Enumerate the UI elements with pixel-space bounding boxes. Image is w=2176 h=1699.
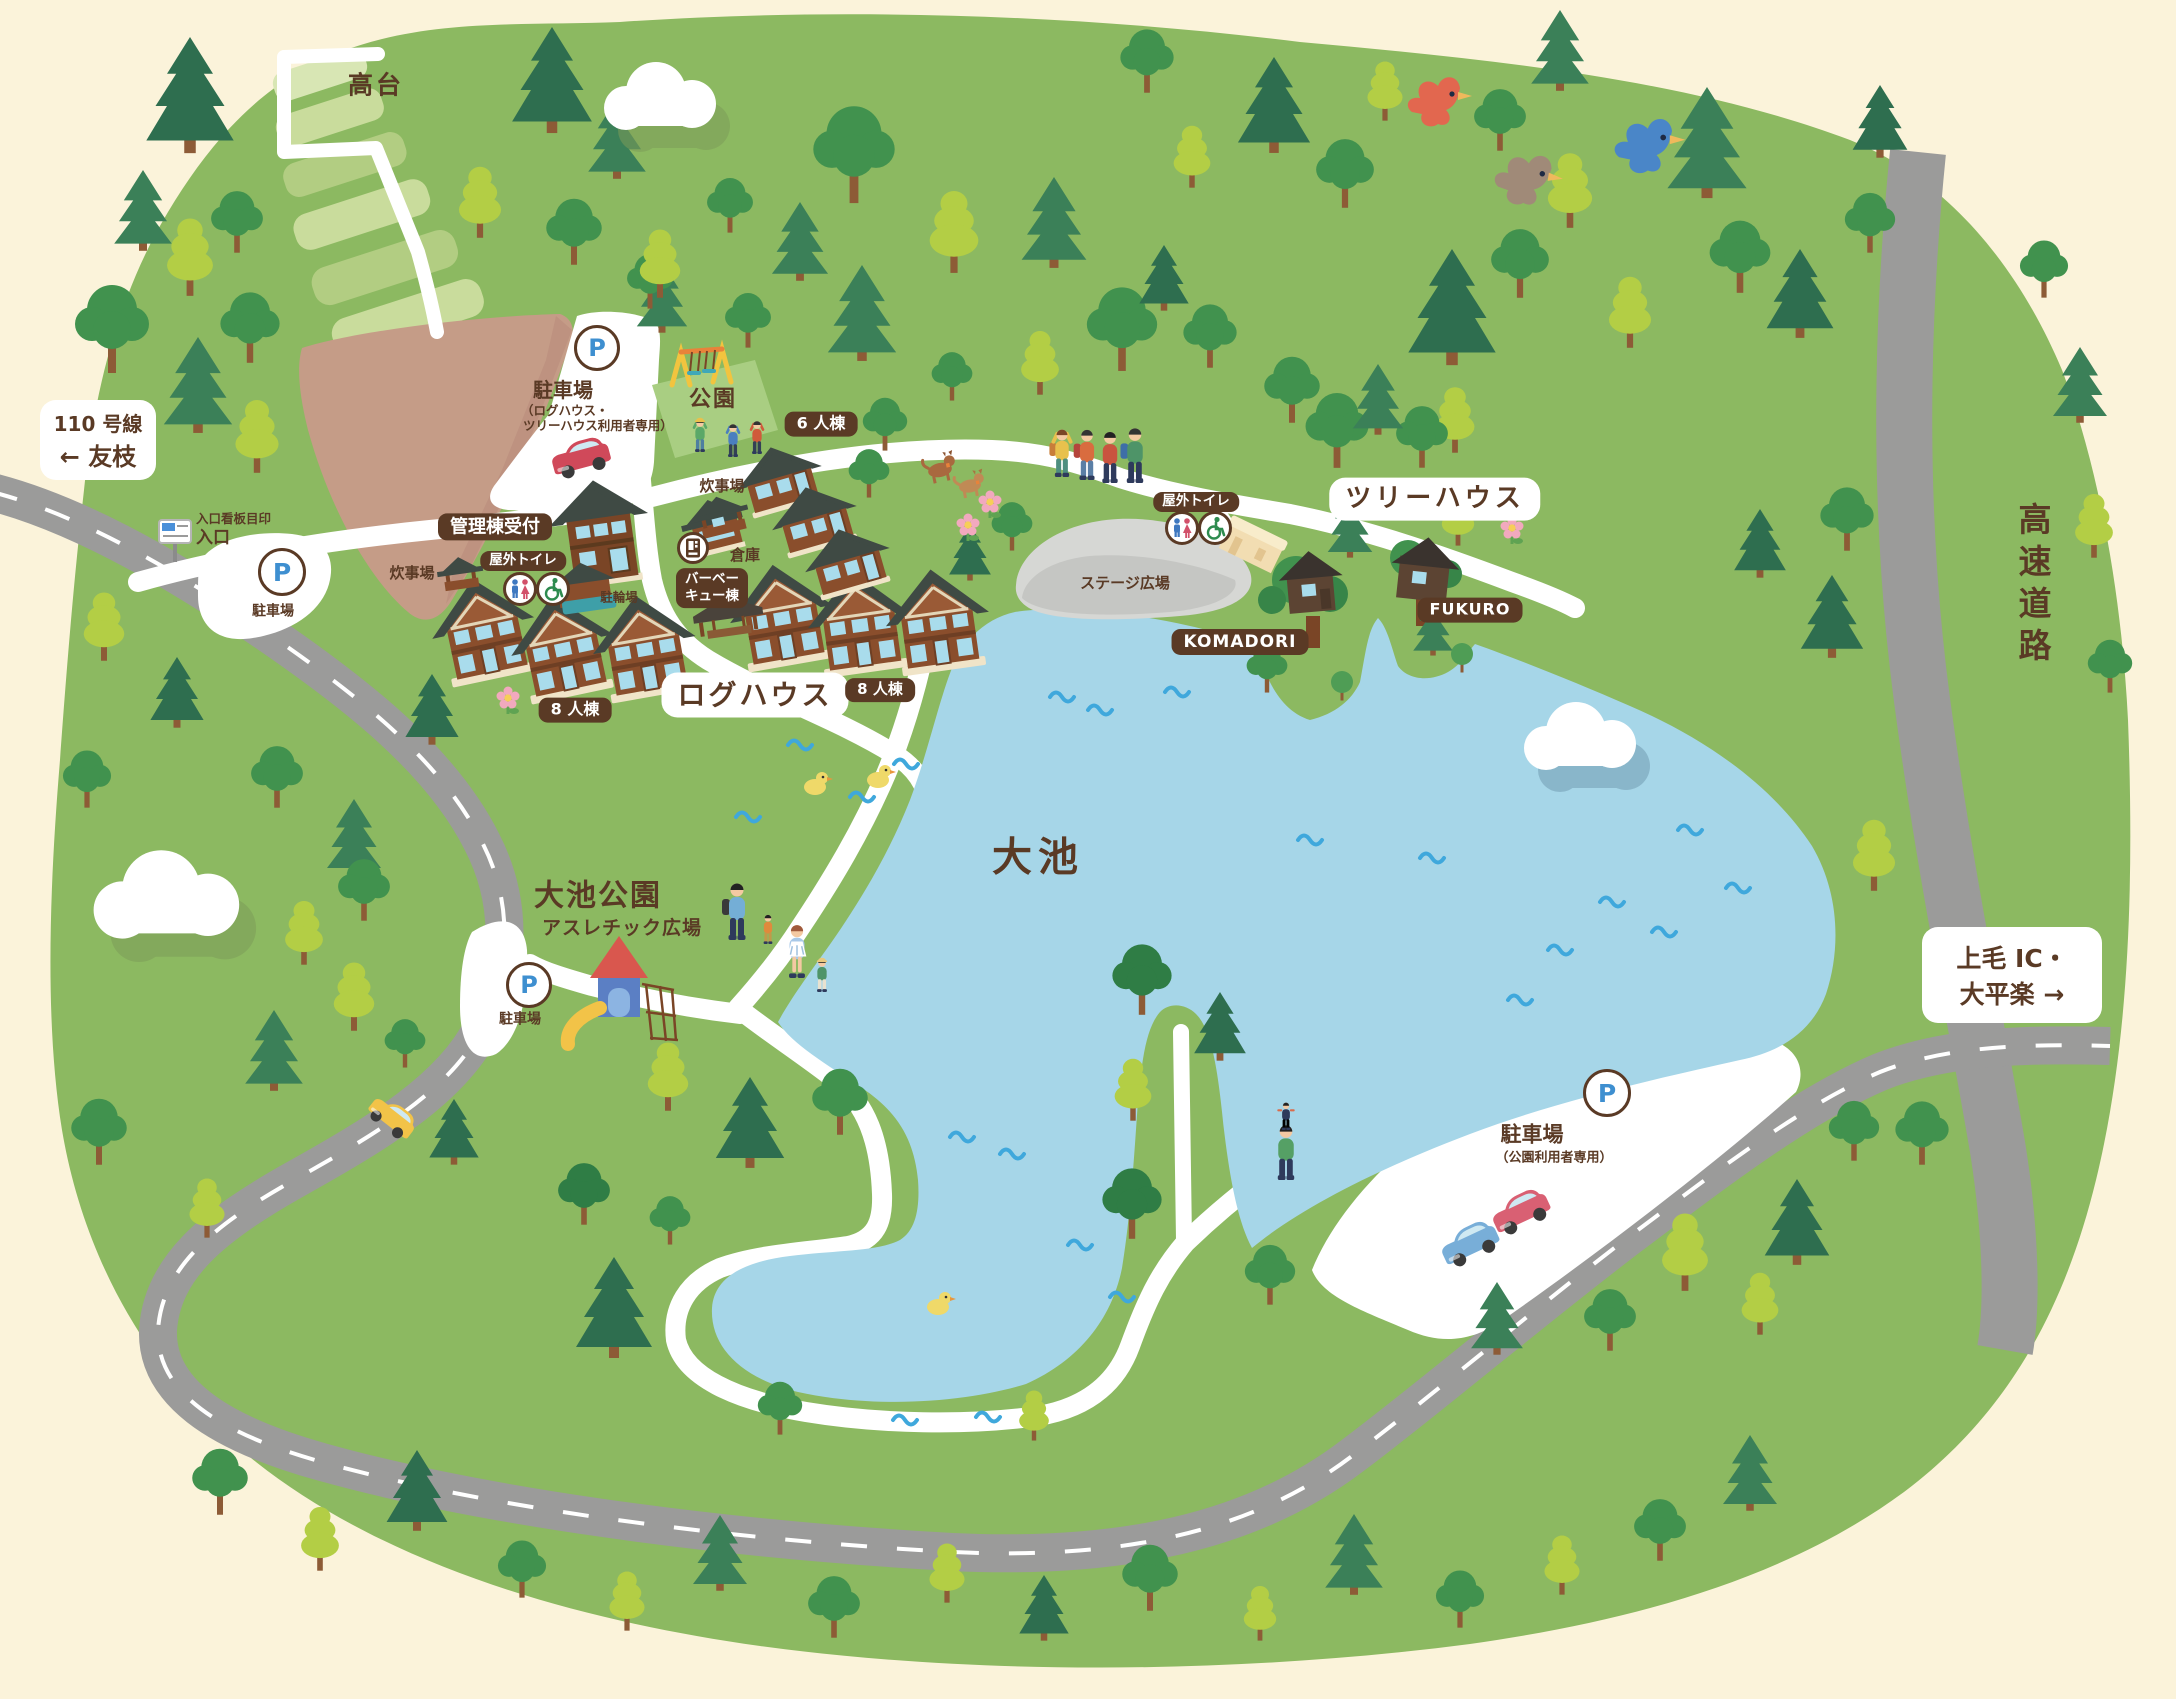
label-park: 公園 — [689, 387, 737, 413]
route110-line2: ← 友枝 — [42, 437, 154, 472]
label-pond: 大池 — [992, 834, 1084, 881]
label-stage: ステージ広場 — [1080, 575, 1170, 593]
route110-line1: 110 号線 — [42, 408, 154, 437]
label-toilet-left: 屋外トイレ — [480, 551, 566, 571]
label-parking-main-note2: ツリーハウス利用者専用） — [523, 419, 673, 434]
label-entrance-sign: 入口看板目印 — [196, 512, 271, 527]
toilet-mf-icon-2 — [1167, 513, 1198, 544]
tree — [1531, 10, 1589, 91]
label-route110: 110 号線 ← 友枝 — [40, 400, 156, 480]
label-toilet-right: 屋外トイレ — [1153, 492, 1239, 512]
park-map: 高台 110 号線 ← 友枝 P 駐車場 （ログハウス・ ツリーハウス利用者専用… — [0, 0, 2176, 1699]
label-takadai: 高台 — [348, 70, 404, 100]
label-treehouse: ツリーハウス — [1329, 478, 1540, 521]
label-jomo-ic: 上毛 IC・ 大平楽 → — [1922, 927, 2102, 1023]
label-parking-entrance: 駐車場 — [252, 604, 294, 621]
label-parking-park-users: 駐車場 — [1501, 1123, 1564, 1148]
label-parking-park-note: （公園利用者専用） — [1495, 1150, 1612, 1165]
label-bbq: バーベー キュー棟 — [676, 568, 748, 608]
jomo-line2: 大平楽 → — [1928, 975, 2096, 1011]
label-parking-main-note1: （ログハウス・ — [521, 404, 609, 419]
label-entrance: 入口 — [196, 528, 230, 548]
parking-icon-athletic: P — [506, 962, 552, 1008]
parking-icon-entrance: P — [258, 548, 306, 596]
bbq-line1: バーベー — [685, 571, 739, 588]
label-fukuro: FUKURO — [1418, 598, 1523, 623]
tree — [114, 170, 172, 251]
label-six-bldg: 6 人棟 — [785, 412, 858, 437]
label-storage: 倉庫 — [730, 547, 760, 565]
label-cooking-upper: 炊事場 — [699, 478, 744, 496]
label-parking-main: 駐車場 — [533, 379, 593, 403]
label-cooking-left: 炊事場 — [389, 565, 434, 583]
tree — [192, 1449, 248, 1515]
parking-icon-main: P — [574, 325, 620, 371]
tree — [146, 37, 233, 153]
label-eight-left: 8 人棟 — [539, 698, 612, 723]
wheelchair-icon-2 — [1200, 513, 1231, 544]
label-parking-athletic: 駐車場 — [499, 1012, 541, 1029]
bbq-line2: キュー棟 — [685, 588, 739, 605]
tree — [301, 1507, 339, 1571]
wheelchair-icon — [538, 574, 569, 605]
label-komadori: KOMADORI — [1172, 629, 1309, 655]
vending-machine-icon — [679, 534, 708, 563]
label-athletic: アスレチック広場 — [542, 917, 702, 939]
tree — [1853, 85, 1908, 158]
label-admin: 管理棟受付 — [438, 513, 552, 540]
toilet-mf-icon — [505, 574, 536, 605]
map-illustration — [0, 0, 2176, 1699]
label-bicycle: 駐輪場 — [600, 591, 638, 606]
label-pond-park: 大池公園 — [534, 878, 662, 913]
label-highway: 高速道路 — [2012, 502, 2051, 670]
label-eight-right: 8 人棟 — [845, 678, 915, 702]
parking-icon-park-users: P — [1583, 1069, 1631, 1117]
label-loghouse: ログハウス — [661, 672, 848, 717]
jomo-line1: 上毛 IC・ — [1928, 939, 2096, 975]
tree — [2020, 240, 2068, 297]
